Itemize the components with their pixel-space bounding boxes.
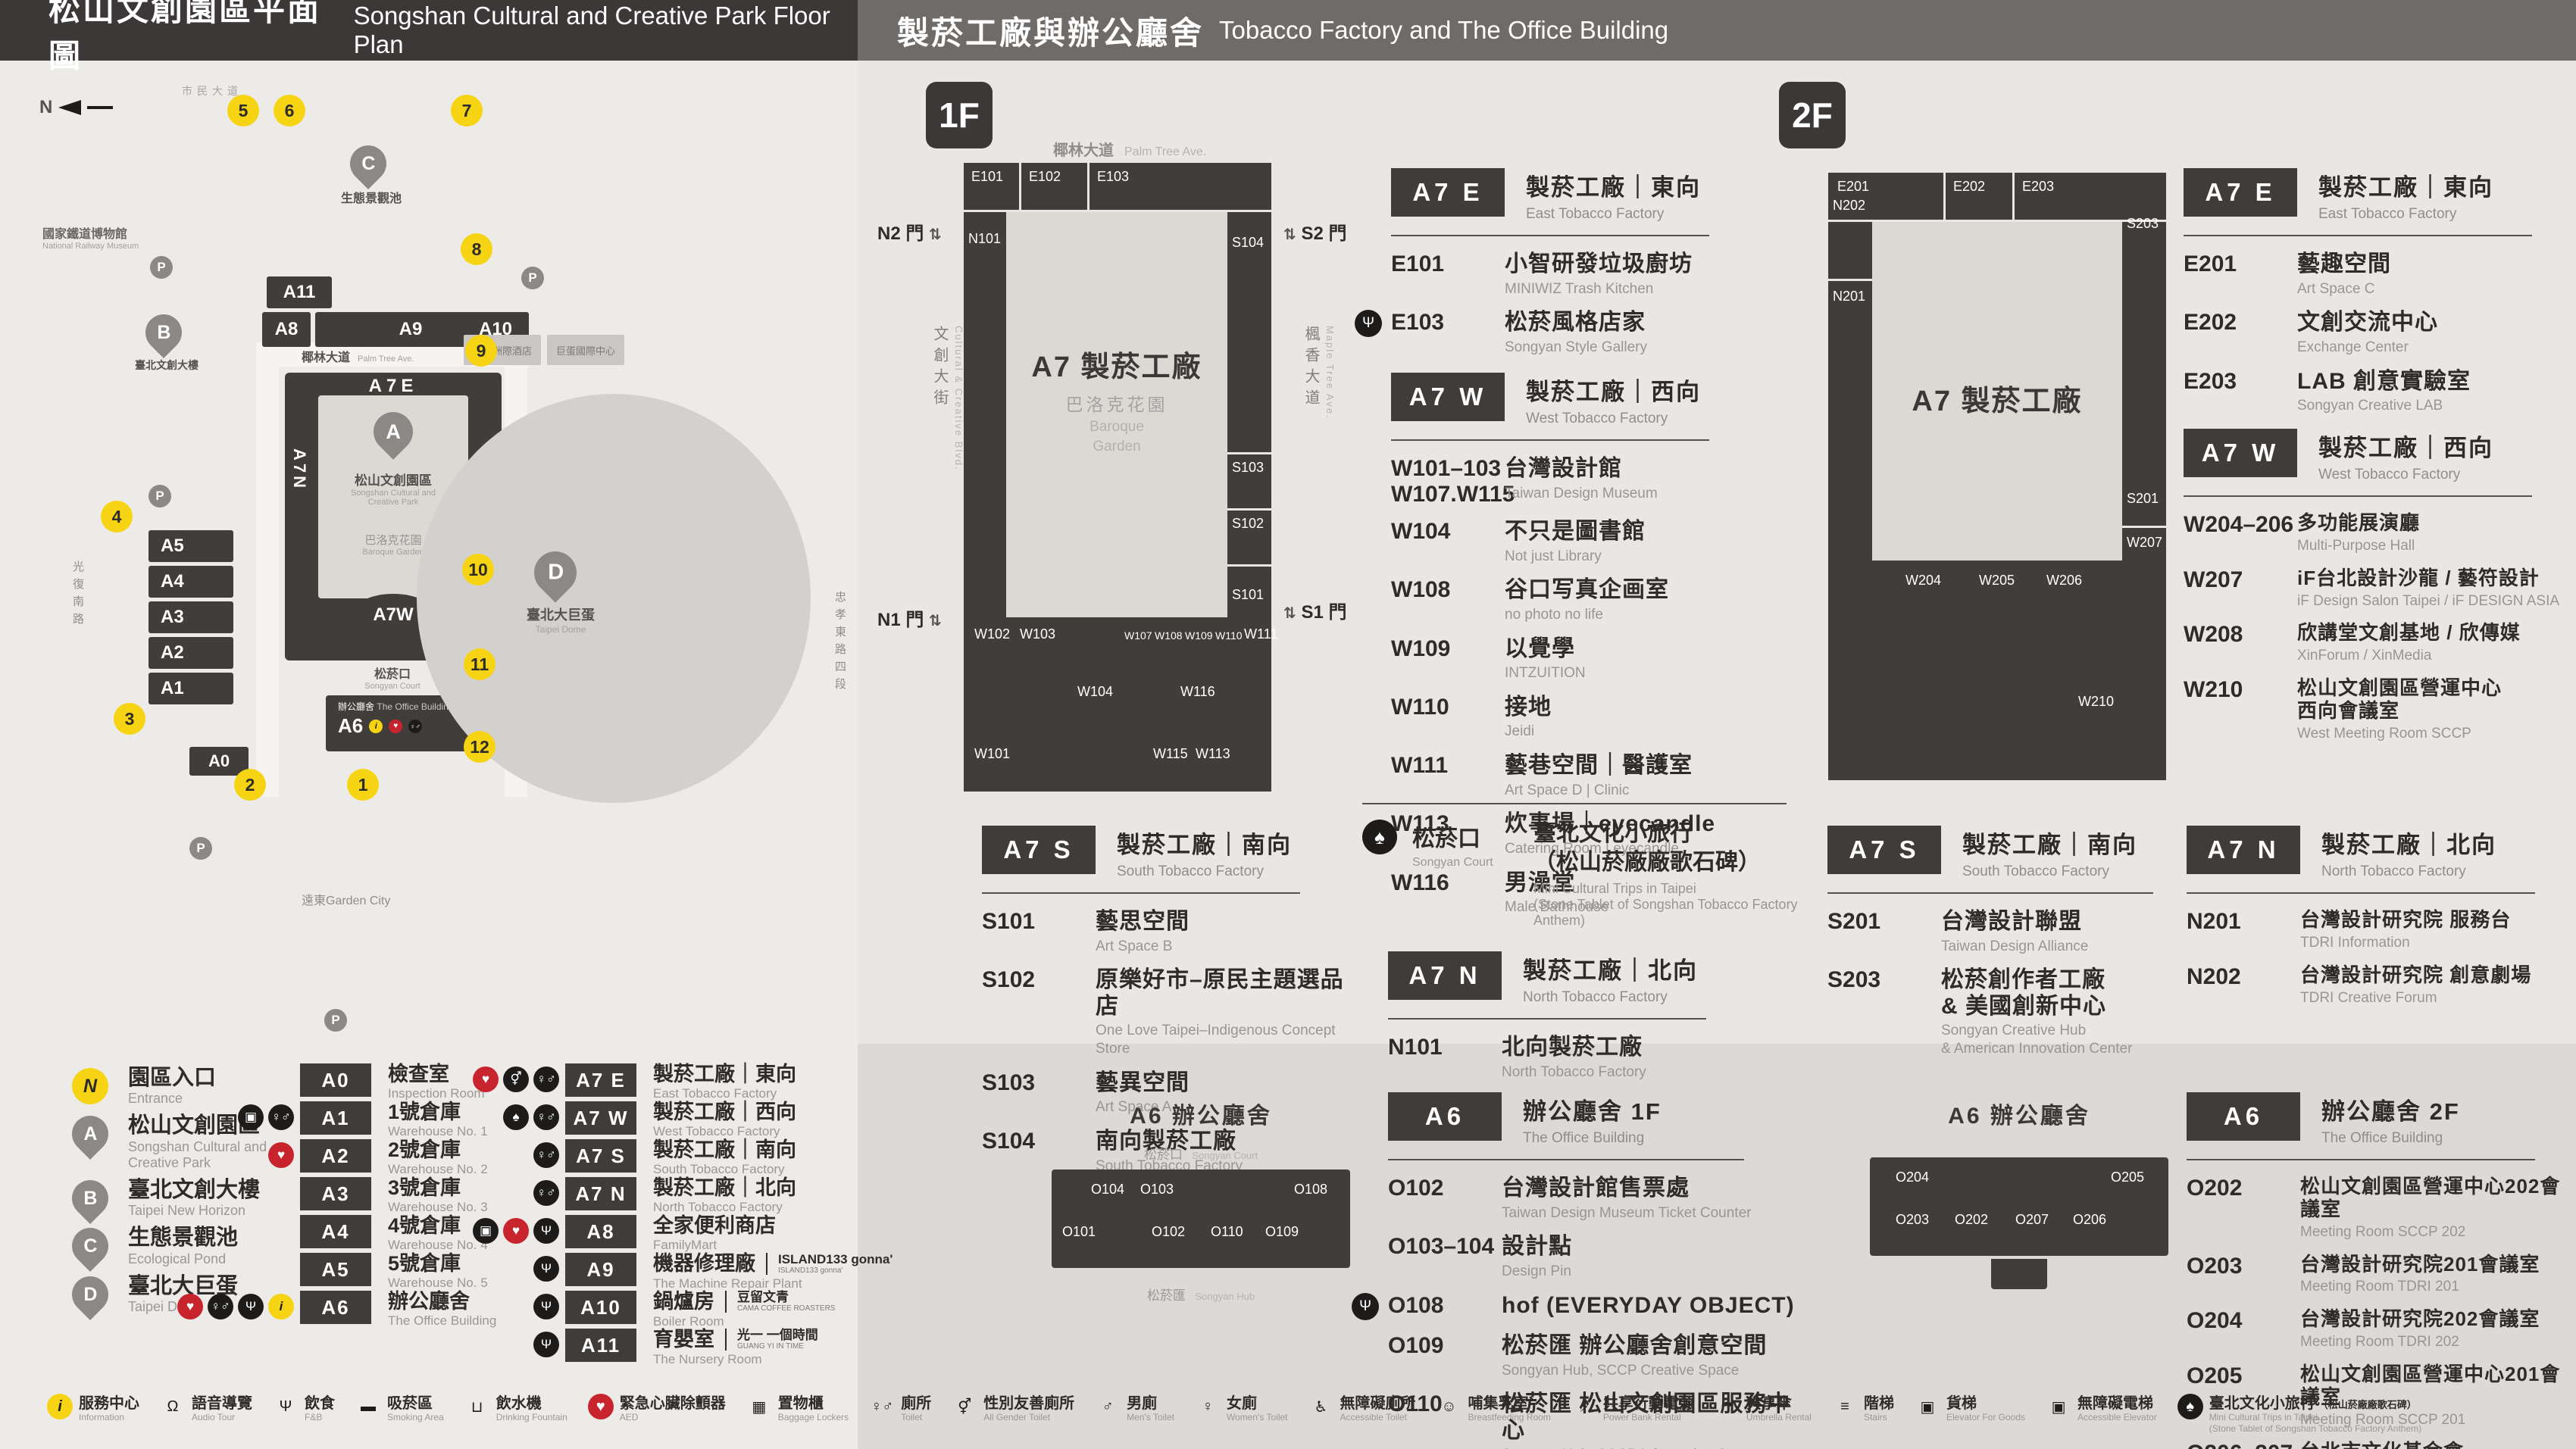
entrance-number: 11 <box>464 648 496 680</box>
floor-1f-badge: 1F <box>926 82 993 148</box>
directory-entry: W108 谷口写真企画室 no photo no life <box>1391 577 1800 623</box>
directory-entry: S203 松菸創作者工廠& 美國創新中心 Songyan Creative Hu… <box>1827 967 2176 1058</box>
room-name-en: One Love Taipei–Indigenous Concept Store <box>1096 1022 1346 1058</box>
facility-zh: 飲食 <box>305 1395 335 1412</box>
info-icon: i <box>268 1294 294 1319</box>
room-code: O102 <box>1388 1176 1502 1222</box>
room-name-en: Art Space D | Clinic <box>1505 782 1693 800</box>
street-civic-blvd: 市民大道 <box>182 83 242 98</box>
building-a5: A5 <box>148 530 233 562</box>
map-marker-icon: D <box>64 1269 116 1320</box>
legend-name-en: FamilyMart <box>653 1238 776 1253</box>
legend-icons: Ψ <box>438 1294 559 1319</box>
legend-block-code: A7 N <box>565 1177 636 1210</box>
room-code: S203 <box>1827 967 1941 1058</box>
toilet-icon: ♀♂ <box>533 1142 559 1168</box>
room-code: O206–207 <box>2187 1441 2300 1449</box>
room-name-en: iF Design Salon Taipei / iF DESIGN ASIA <box>2297 592 2559 611</box>
parking-icon: P <box>148 485 171 507</box>
room-code: S102 <box>982 967 1096 1058</box>
facility-en: Drinking Fountain <box>496 1412 567 1423</box>
facility-legend-item: ⚥ 性別友善廁所 All Gender Toilet <box>952 1394 1074 1423</box>
room-name-en: Not just Library <box>1505 548 1646 566</box>
directory-entry: S201 台灣設計聯盟 Taiwan Design Alliance <box>1827 909 2176 955</box>
womens-toilet-icon: ♀ <box>1195 1394 1221 1419</box>
room-code: O204 <box>2187 1308 2300 1351</box>
legend-name-zh: 製菸工廠｜西向 <box>653 1101 796 1123</box>
mens-toilet-icon: ♂ <box>1095 1394 1121 1419</box>
map-marker-icon: C <box>64 1220 116 1272</box>
legend-block-code: A7 S <box>565 1139 636 1173</box>
room-code: W109 <box>1391 636 1505 682</box>
section-chip: A7 W <box>2184 429 2297 477</box>
directory-entry: E201 藝趣空間 Art Space C <box>2184 251 2570 298</box>
legend-icons: ♀♂ <box>438 1180 559 1206</box>
accessible-toilet-icon: ♿ <box>1308 1394 1334 1419</box>
entrance-number: 7 <box>451 95 483 126</box>
a6-plan-1f: A6 辦公廳舍 松菸口 Songyan Court O104 O103 O108… <box>1038 1097 1364 1354</box>
section-a7n-2f: A7 N 製菸工廠｜北向North Tobacco Factory N201 台… <box>2187 826 2573 1019</box>
room-name-en: Songyan Creative LAB <box>2297 397 2471 415</box>
room-code: O110 <box>1388 1391 1502 1449</box>
room-code: O108 <box>1388 1293 1502 1322</box>
fnb-icon: Ψ <box>273 1394 299 1419</box>
directory-entry: W208 欣講堂文創基地 / 欣傳媒 XinForum / XinMedia <box>2184 622 2570 665</box>
room-code: O103–104 <box>1388 1234 1502 1280</box>
aed-icon: ♥ <box>503 1218 529 1244</box>
legend-icons: ♠♀♂ <box>438 1104 559 1130</box>
legend-name-zh: 製菸工廠｜東向 <box>653 1063 796 1085</box>
facility-legend-item: ♀♂ 廁所 Toilet <box>869 1394 931 1423</box>
entry-icon-slot: Ψ <box>1355 310 1382 337</box>
room-name-zh: 藝趣空間 <box>2297 251 2391 278</box>
room-code: N101 <box>1388 1035 1502 1081</box>
building-a4: A4 <box>148 566 233 598</box>
dome-international-center: 巨蛋國際中心 <box>547 335 624 365</box>
legend-block-code: A4 <box>300 1215 371 1248</box>
facility-legend-item: ▣ 無障礙電梯 Accessible Elevator <box>2046 1394 2157 1423</box>
gate-n1: N1 門 ⇅ <box>877 604 942 631</box>
compass-north-icon: N <box>39 97 113 118</box>
room-code: O205 <box>2187 1363 2300 1429</box>
parking-icon: P <box>521 267 544 289</box>
room-name-en: Songyan Style Gallery <box>1505 339 1647 357</box>
songyan-court-icon: ♠ <box>1362 820 1397 854</box>
legend-block-code: A1 <box>300 1101 371 1135</box>
room-name-en: Exchange Center <box>2297 339 2438 357</box>
section-chip: A7 S <box>982 826 1096 874</box>
directory-entry: O202 松山文創園區營運中心202會議室 Meeting Room SCCP … <box>2187 1176 2574 1241</box>
room-code: E103 <box>1391 310 1505 356</box>
dome-label: 臺北大巨蛋 Taipei Dome <box>500 604 621 635</box>
gate-s2: ⇅ S2 門 <box>1283 218 1346 245</box>
room-code: O203 <box>2187 1254 2300 1297</box>
room-name-en: West Meeting Room SCCP <box>2297 725 2502 743</box>
plan1-center-label: A7 製菸工廠 <box>1006 343 1227 385</box>
aed-icon: ♥ <box>389 720 402 733</box>
entrance-number: 3 <box>114 703 145 735</box>
left-header: 松山文創園區平面圖 Songshan Cultural and Creative… <box>0 0 858 61</box>
drinking-fountain-icon: ⊔ <box>464 1394 490 1419</box>
gate-s1: ⇅ S1 門 <box>1283 597 1346 623</box>
room-name-zh: 藝巷空間｜醫護室 <box>1505 753 1693 779</box>
section-chip: A7 E <box>2184 168 2297 217</box>
legend-name-zh: 育嬰室 光一 一個時間GUANG YI IN TIME <box>653 1329 818 1351</box>
section-a6-1f: A6 辦公廳舍 1FThe Office Building O102 台灣設計館… <box>1388 1092 1812 1449</box>
room-code: N201 <box>2187 909 2300 952</box>
legend-name-zh: 製菸工廠｜南向 <box>653 1139 796 1160</box>
legend-name-en: West Tobacco Factory <box>653 1124 796 1139</box>
a7n-wing-label: A7N <box>289 448 309 491</box>
floor-plan-poster: 松山文創園區平面圖 Songshan Cultural and Creative… <box>0 0 2576 1449</box>
room-code: O202 <box>2187 1176 2300 1241</box>
directory-entry: O103–104 設計點 Design Pin <box>1388 1234 1812 1280</box>
a7e-wing-label: A7E <box>285 376 502 397</box>
room-name-zh: 松菸匯 辦公廳舍創意空間 <box>1502 1333 1767 1360</box>
room-name-zh: 松山文創園區營運中心202會議室 <box>2300 1176 2574 1221</box>
entrance-number: 12 <box>464 731 496 763</box>
section-chip: A7 N <box>2187 826 2300 874</box>
section-a7n-1f: A7 N 製菸工廠｜北向North Tobacco Factory N101 北… <box>1388 951 1812 1093</box>
facility-legend-item: ♥ 緊急心臟除顫器 AED <box>588 1394 726 1423</box>
room-name-en: Art Space C <box>2297 280 2391 298</box>
section-songyan-court: ♠ 松菸口 Songyan Court 臺北文化小旅行 （松山菸廠廠歌石碑） M… <box>1362 803 1817 929</box>
parking-icon: P <box>324 1009 347 1032</box>
directory-entry: O203 台灣設計研究院201會議室 Meeting Room TDRI 201 <box>2187 1254 2574 1297</box>
entrance-number: 8 <box>461 233 492 265</box>
legend-name-zh: 製菸工廠｜北向 <box>653 1177 796 1198</box>
room-name-zh: iF台北設計沙龍 / 藝符設計 <box>2297 567 2559 590</box>
room-name-en: Meeting Room TDRI 201 <box>2300 1278 2540 1296</box>
room-name-zh: 小智研發垃圾廚坊 <box>1505 251 1693 278</box>
section-a7s-2f: A7 S 製菸工廠｜南向South Tobacco Factory S201 台… <box>1827 826 2176 1070</box>
lockers-icon: ▦ <box>746 1394 772 1419</box>
room-code: E101 <box>1391 251 1505 298</box>
facility-en: Smoking Area <box>387 1412 444 1423</box>
room-code: W108 <box>1391 577 1505 623</box>
room-name-zh: 藝思空間 <box>1096 909 1190 935</box>
legend-block-code: A11 <box>565 1329 636 1362</box>
street-cultural-1f-en: Cultural & Creative Blvd. <box>953 326 964 471</box>
section-a7e-2f: A7 E 製菸工廠｜東向East Tobacco Factory E201 藝趣… <box>2184 168 2570 427</box>
legend-block-code: A10 <box>565 1291 636 1324</box>
directory-entry: N201 台灣設計研究院 服務台 TDRI Information <box>2187 909 2573 952</box>
building-a8: A8 <box>262 312 311 347</box>
room-name-zh: 松山文創園區營運中心西向會議室 <box>2297 677 2502 723</box>
gate-n2: N2 門 ⇅ <box>877 218 942 245</box>
directory-entry: O206–207 台北市文化基金會松山文創園區營運中心 Taipei Cultu… <box>2187 1441 2574 1449</box>
room-code: E203 <box>2184 369 2297 415</box>
fnb-icon: Ψ <box>238 1294 264 1319</box>
goods-elevator-icon: ▣ <box>1915 1394 1940 1419</box>
fnb-icon: Ψ <box>533 1294 559 1319</box>
all-gender-toilet-icon: ⚥ <box>952 1394 977 1419</box>
legend-block-code: A0 <box>300 1063 371 1097</box>
map-marker-icon: N <box>72 1068 108 1104</box>
facility-en: Toilet <box>901 1412 931 1423</box>
directory-entry: N202 台灣設計研究院 創意劇場 TDRI Creative Forum <box>2187 964 2573 1007</box>
legend-name-en: South Tobacco Factory <box>653 1162 796 1177</box>
room-name-zh: 台灣設計研究院201會議室 <box>2300 1254 2540 1276</box>
legend-icons: ♥ <box>173 1142 294 1168</box>
fnb-icon: Ψ <box>533 1332 559 1357</box>
street-cultural-1f: 文創大街 <box>929 326 951 411</box>
street-maple-1f-en: Maple Tree Ave. <box>1324 326 1336 420</box>
garden-city-label: 遠東Garden City <box>302 890 390 908</box>
building-a3: A3 <box>148 601 233 633</box>
room-name-zh: LAB 創意實驗室 <box>2297 369 2471 395</box>
all-gender-toilet-icon: ⚥ <box>503 1066 529 1092</box>
facility-legend-item: ⊔ 飲水機 Drinking Fountain <box>464 1394 567 1423</box>
facility-en: Men's Toilet <box>1127 1412 1174 1423</box>
facility-en: Elevator For Goods <box>1946 1412 2025 1423</box>
facility-en: F&B <box>305 1412 335 1423</box>
entrance-number: 10 <box>462 554 494 586</box>
info-icon: i <box>47 1394 73 1419</box>
legend-block-code: A2 <box>300 1139 371 1173</box>
legend-row: ♀♂ A7 S 製菸工廠｜南向 South Tobacco Factory <box>438 1139 893 1170</box>
aed-icon: ♥ <box>268 1142 294 1168</box>
room-name-en: TDRI Creative Forum <box>2300 989 2531 1007</box>
toilet-icon: ♀♂ <box>533 1104 559 1130</box>
entrance-number: 9 <box>465 335 497 367</box>
legend-row: ♠♀♂ A7 W 製菸工廠｜西向 West Tobacco Factory <box>438 1101 893 1132</box>
aed-icon: ♥ <box>177 1294 203 1319</box>
room-name-en: TDRI Information <box>2300 934 2511 952</box>
facility-legend-item: ▬ 吸菸區 Smoking Area <box>355 1394 444 1423</box>
legend-block-code: A3 <box>300 1177 371 1210</box>
entrance-number: 6 <box>274 95 305 126</box>
street-maple-1f: 楓香大道 <box>1300 326 1322 411</box>
facility-icon-slot: ♂ <box>1095 1394 1121 1419</box>
facility-icon-slot: i <box>47 1394 73 1419</box>
facility-zh: 吸菸區 <box>387 1395 444 1412</box>
directory-entry: S102 原樂好市–原民主題選品店 One Love Taipei–Indige… <box>982 967 1346 1058</box>
facility-legend-item: i 服務中心 Information <box>47 1394 139 1423</box>
toilet-icon: ♀♂ <box>268 1104 294 1130</box>
section-chip: A7 E <box>1391 168 1505 217</box>
facility-icon-slot: ♿ <box>1308 1394 1334 1419</box>
room-code: E202 <box>2184 310 2297 356</box>
legend-block-code: A6 <box>300 1291 371 1324</box>
facility-en: Stairs <box>1864 1412 1894 1423</box>
room-name-zh: 台灣設計研究院 服務台 <box>2300 909 2511 932</box>
facility-en: Women's Toilet <box>1227 1412 1288 1423</box>
room-code: W101–103 W107.W115 <box>1391 456 1505 507</box>
directory-entry: E203 LAB 創意實驗室 Songyan Creative LAB <box>2184 369 2570 415</box>
room-name-zh: 台灣設計館售票處 <box>1502 1176 1751 1202</box>
room-name-zh: 台灣設計研究院 創意劇場 <box>2300 964 2531 987</box>
directory-entry: W101–103 W107.W115 台灣設計館 Taiwan Design M… <box>1391 456 1800 507</box>
info-icon: i <box>369 720 383 733</box>
entrance-number: 1 <box>347 769 379 801</box>
facility-zh: 貨梯 <box>1946 1395 2025 1412</box>
legend-row: Ψ A9 機器修理廠 ISLAND133 gonna'ISLAND133 gon… <box>438 1253 893 1284</box>
elevator-icon: ▣ <box>238 1104 264 1130</box>
facility-icon-slot: ▬ <box>355 1394 381 1419</box>
facility-icon-slot: ▦ <box>746 1394 772 1419</box>
room-name-en: Taiwan Design Museum <box>1505 485 1658 503</box>
room-name-zh: 文創交流中心 <box>2297 310 2438 336</box>
audio-tour-icon: Ω <box>160 1394 186 1419</box>
room-name-en: Meeting Room TDRI 202 <box>2300 1333 2540 1351</box>
directory-entry: E202 文創交流中心 Exchange Center <box>2184 310 2570 356</box>
building-a2: A2 <box>148 637 233 669</box>
parking-icon: P <box>150 256 173 279</box>
room-name-zh: 接地 <box>1505 695 1552 721</box>
directory-entry: O109 松菸匯 辦公廳舍創意空間 Songyan Hub, SCCP Crea… <box>1388 1333 1812 1379</box>
legend-row: ♀♂ A7 N 製菸工廠｜北向 North Tobacco Factory <box>438 1177 893 1208</box>
facility-icon-slot: ▣ <box>1915 1394 1940 1419</box>
room-code: N202 <box>2187 964 2300 1007</box>
legend-row: Ψ A11 育嬰室 光一 一個時間GUANG YI IN TIME The Nu… <box>438 1329 893 1360</box>
room-name-en: Meeting Room SCCP 202 <box>2300 1223 2574 1241</box>
facility-en: Audio Tour <box>192 1412 252 1423</box>
room-code: W208 <box>2184 622 2297 665</box>
pin-c-ecological-pond: C <box>342 138 394 189</box>
directory-entry: N101 北向製菸工廠 North Tobacco Factory <box>1388 1035 1812 1081</box>
legend-block-code: A8 <box>565 1215 636 1248</box>
facility-legend-item: ♀ 女廁 Women's Toilet <box>1195 1394 1288 1423</box>
accessible-elevator-icon: ▣ <box>2046 1394 2071 1419</box>
facility-icon-slot: Ω <box>160 1394 186 1419</box>
room-name-en: Songyan Hub, SCCP Information Center <box>1502 1446 1812 1449</box>
legend-name-en: North Tobacco Factory <box>653 1200 796 1215</box>
legend-icons: ▣♀♂ <box>173 1104 294 1130</box>
facility-zh: 飲水機 <box>496 1395 567 1412</box>
facility-en: Baggage Lockers <box>778 1412 849 1423</box>
facility-legend-strip: i 服務中心 Information Ω 語音導覽 Audio Tour Ψ 飲… <box>47 1394 2421 1435</box>
toilet-icon: ♀♂ <box>533 1066 559 1092</box>
legend-icons: ♀♂ <box>438 1142 559 1168</box>
fnb-icon: Ψ <box>533 1218 559 1244</box>
facility-legend-item: ▦ 置物櫃 Baggage Lockers <box>746 1394 849 1423</box>
facility-icon-slot: ≡ <box>1832 1394 1858 1419</box>
right-title-zh: 製菸工廠與辦公廳舍 <box>897 8 1204 54</box>
facility-icon-slot: ⚥ <box>952 1394 977 1419</box>
facility-en: Information <box>79 1412 139 1423</box>
room-code: E201 <box>2184 251 2297 298</box>
section-chip: A7 S <box>1827 826 1941 874</box>
legend-name-zh: 全家便利商店 <box>653 1215 776 1236</box>
legend-icons: ▣♥Ψ <box>438 1218 559 1244</box>
map-marker-icon: A <box>64 1108 116 1160</box>
room-code: S201 <box>1827 909 1941 955</box>
entrance-number: 5 <box>227 95 259 126</box>
section-chip: A6 <box>1388 1092 1502 1141</box>
section-chip: A7 W <box>1391 373 1505 421</box>
room-name-zh: 台灣設計聯盟 <box>1941 909 2088 935</box>
room-name-en: XinForum / XinMedia <box>2297 647 2521 665</box>
smoking-icon: ▬ <box>355 1394 381 1419</box>
directory-entry: O110 松菸匯 松山文創園區服務中心 Songyan Hub, SCCP In… <box>1388 1391 1812 1449</box>
map-marker-icon: B <box>64 1173 116 1224</box>
left-title-en: Songshan Cultural and Creative Park Floo… <box>354 2 858 59</box>
directory-entry: W207 iF台北設計沙龍 / 藝符設計 iF Design Salon Tai… <box>2184 567 2570 611</box>
facility-legend-item: ≡ 階梯 Stairs <box>1832 1394 1894 1423</box>
legend-icons: Ψ <box>438 1256 559 1282</box>
fnb-icon: Ψ <box>533 1256 559 1282</box>
room-code: W110 <box>1391 695 1505 741</box>
facility-zh: 置物櫃 <box>778 1395 849 1412</box>
room-name-en: Jeidi <box>1505 723 1552 741</box>
floor-plan-2f: E201 E202 E203 N202 N201 S203 S201 W207 … <box>1828 173 2166 780</box>
room-name-zh: 松山文創園區營運中心201會議室 <box>2300 1363 2574 1409</box>
building-a11: A11 <box>267 276 332 308</box>
directory-entry: W210 松山文創園區營運中心西向會議室 West Meeting Room S… <box>2184 677 2570 743</box>
aed-icon: ♥ <box>588 1394 614 1419</box>
room-name-zh: 台灣設計研究院202會議室 <box>2300 1308 2540 1331</box>
fnb-icon: Ψ <box>1352 1293 1379 1320</box>
room-name-zh: 多功能展演廳 <box>2297 512 2420 535</box>
facility-legend-item: Ω 語音導覽 Audio Tour <box>160 1394 252 1423</box>
room-name-zh: 藝異空間 <box>1096 1070 1190 1097</box>
street-guangfu: 光復南路 <box>70 561 86 630</box>
room-name-zh: 松菸匯 松山文創園區服務中心 <box>1502 1391 1812 1444</box>
floor-plan-1f: E101 E102 E103 N101 S104 S103 S102 S101 … <box>964 163 1271 792</box>
room-code: W104 <box>1391 519 1505 565</box>
directory-entry: W109 以覺學 INTZUITION <box>1391 636 1800 682</box>
legend-block-code: A9 <box>565 1253 636 1286</box>
directory-entry: W104 不只是圖書館 Not just Library <box>1391 519 1800 565</box>
room-name-zh: 設計點 <box>1502 1234 1572 1260</box>
pin-b-taipei-new-horizon: B <box>138 307 189 358</box>
directory-entry: Ψ E103 松菸風格店家 Songyan Style Gallery <box>1391 310 1800 356</box>
directory-entry: W111 藝巷空間｜醫護室 Art Space D | Clinic <box>1391 753 1800 799</box>
facility-zh: 女廁 <box>1227 1395 1288 1412</box>
facility-en: All Gender Toilet <box>983 1412 1074 1423</box>
elevator-icon: ▣ <box>473 1218 499 1244</box>
room-name-zh: 松菸創作者工廠& 美國創新中心 <box>1941 967 2132 1020</box>
room-name-en: Design Pin <box>1502 1263 1572 1281</box>
room-code: O109 <box>1388 1333 1502 1379</box>
building-a1: A1 <box>148 673 233 704</box>
legend-name-zh: 機器修理廠 ISLAND133 gonna'ISLAND133 gonna' <box>653 1253 893 1275</box>
facility-en: Accessible Elevator <box>2077 1412 2157 1423</box>
legend-block-code: A7 E <box>565 1063 636 1097</box>
room-name-en: MINIWIZ Trash Kitchen <box>1505 280 1693 298</box>
room-name-en: Taiwan Design Museum Ticket Counter <box>1502 1204 1751 1223</box>
right-header: 製菸工廠與辦公廳舍 Tobacco Factory and The Office… <box>858 0 2576 61</box>
legend-icons: ♥⚥♀♂ <box>438 1066 559 1092</box>
street-palm-ave: 椰林大道Palm Tree Ave. <box>302 347 414 365</box>
room-name-zh: 谷口写真企画室 <box>1505 577 1669 604</box>
stairs-icon: ≡ <box>1832 1394 1858 1419</box>
facility-zh: 性別友善廁所 <box>983 1395 1074 1412</box>
room-name-en: Multi-Purpose Hall <box>2297 537 2420 555</box>
aed-icon: ♥ <box>473 1066 499 1092</box>
entrance-number: 2 <box>234 769 266 801</box>
plan2-center-label: A7 製菸工廠 <box>1872 377 2122 419</box>
directory-entry: O204 台灣設計研究院202會議室 Meeting Room TDRI 202 <box>2187 1308 2574 1351</box>
toilet-icon: ♀♂ <box>408 720 422 733</box>
room-name-en: Songyan Creative Hub& American Innovatio… <box>1941 1022 2132 1058</box>
facility-en: AED <box>620 1412 726 1423</box>
legend-name-en: The Nursery Room <box>653 1352 818 1367</box>
facility-legend-item: ♂ 男廁 Men's Toilet <box>1095 1394 1174 1423</box>
facility-icon-slot: ▣ <box>2046 1394 2071 1419</box>
section-chip: A6 <box>2187 1092 2300 1141</box>
legend-group-b: ♥⚥♀♂ A7 E 製菸工廠｜東向 East Tobacco Factory ♠… <box>438 1063 893 1366</box>
room-name-zh: 台北市文化基金會松山文創園區營運中心 <box>2300 1441 2574 1449</box>
room-name-en: North Tobacco Factory <box>1502 1063 1646 1082</box>
facility-zh: 緊急心臟除顫器 <box>620 1395 726 1412</box>
facility-zh: 無障礙電梯 <box>2077 1395 2157 1412</box>
facility-zh: 階梯 <box>1864 1395 1894 1412</box>
room-name-en: Meeting Room SCCP 201 <box>2300 1411 2574 1429</box>
legend-icons: Ψ <box>438 1332 559 1357</box>
facility-legend-item: Ψ 飲食 F&B <box>273 1394 335 1423</box>
